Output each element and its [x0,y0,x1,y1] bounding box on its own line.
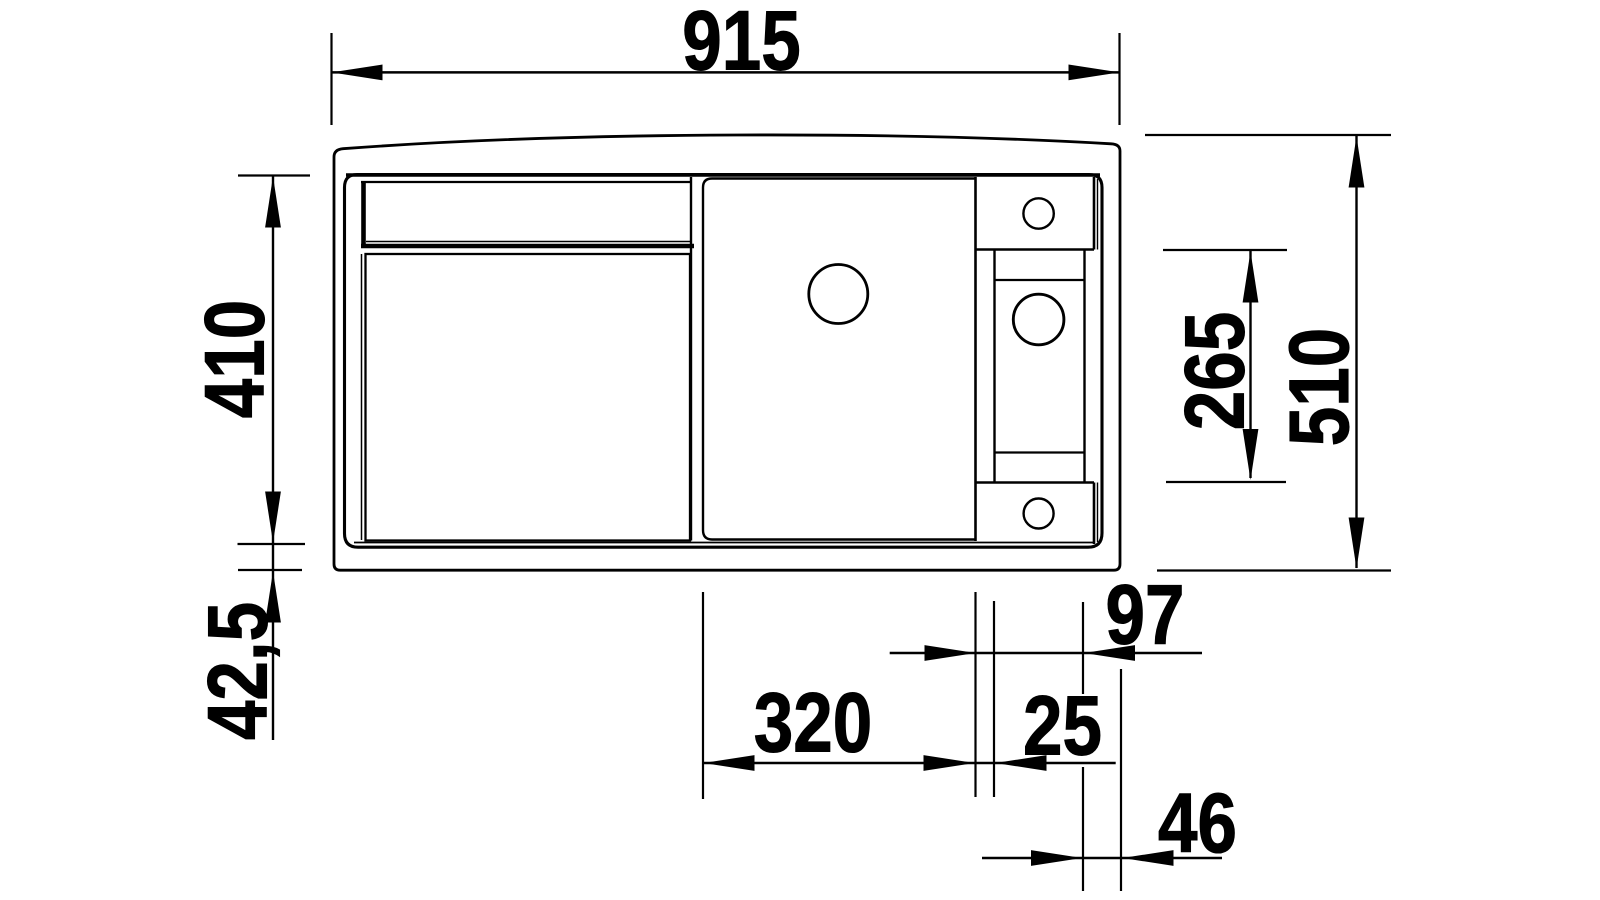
svg-text:915: 915 [682,0,800,88]
svg-text:265: 265 [1169,312,1262,430]
svg-text:46: 46 [1158,777,1237,870]
svg-text:97: 97 [1106,569,1185,662]
svg-text:25: 25 [1023,680,1102,773]
svg-text:320: 320 [754,677,872,770]
svg-text:42,5: 42,5 [192,602,285,740]
svg-text:510: 510 [1273,328,1366,446]
svg-text:410: 410 [189,300,282,418]
